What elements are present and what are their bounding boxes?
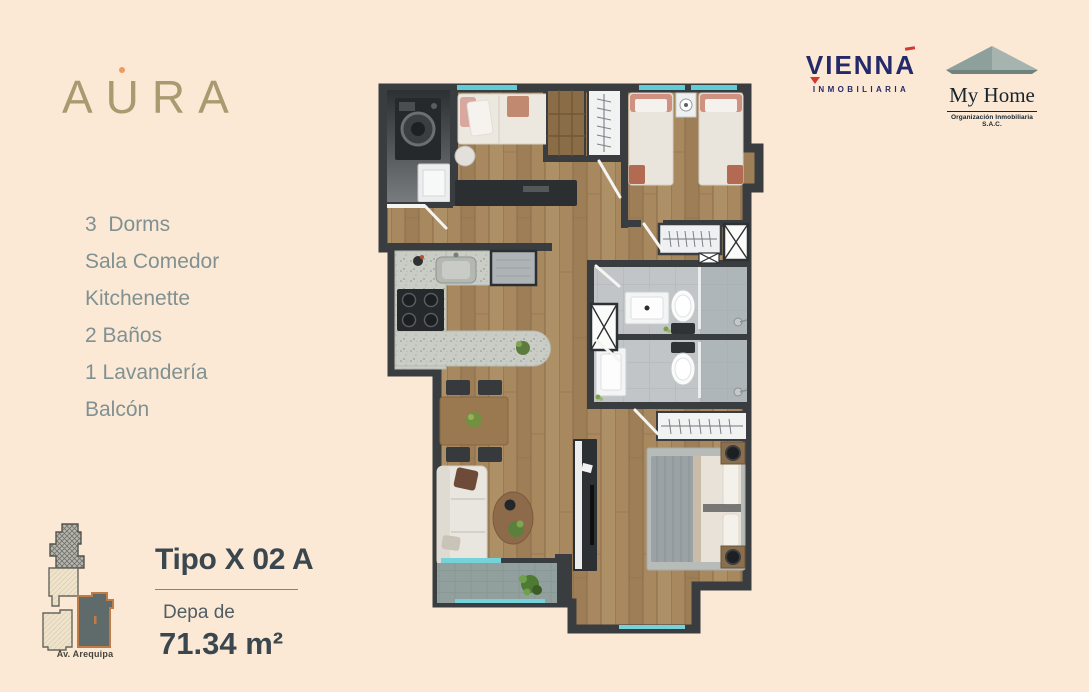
tower-wing-north bbox=[50, 524, 84, 568]
feature-list: 3 Dorms Sala Comedor Kitchenette 2 Baños… bbox=[85, 214, 219, 436]
terrace-glass bbox=[619, 625, 685, 629]
aura-logo-text: AURA bbox=[62, 71, 242, 123]
feature-item: 2 Baños bbox=[85, 325, 219, 346]
laundry-room bbox=[387, 90, 450, 204]
floor-plan bbox=[371, 80, 771, 642]
aura-logo: AURA bbox=[62, 74, 242, 120]
vienna-tagline: INMOBILIARIA bbox=[802, 85, 920, 94]
building-footprint-map bbox=[32, 516, 124, 656]
tower-wing-south bbox=[43, 610, 72, 650]
vienna-logo-text: VIENNA bbox=[806, 50, 916, 80]
myhome-logo-text: My Home bbox=[947, 81, 1037, 112]
feature-item: 1 Lavandería bbox=[85, 362, 219, 383]
divider-line bbox=[155, 589, 298, 590]
feature-item: 3 Dorms bbox=[85, 214, 219, 235]
tv-divider bbox=[573, 439, 597, 571]
bathroom-x-closet bbox=[591, 304, 617, 350]
vienna-red-triangle-icon bbox=[810, 77, 820, 84]
vienna-logo: VIENNA INMOBILIARIA bbox=[802, 52, 920, 94]
balcony bbox=[437, 558, 557, 603]
street-label: Av. Arequipa bbox=[30, 649, 140, 659]
tower-wing-middle bbox=[49, 568, 78, 606]
area-value: 71.34 m² bbox=[159, 626, 313, 662]
unit-door-marker bbox=[94, 616, 97, 624]
feature-item: Kitchenette bbox=[85, 288, 219, 309]
hallway-closet bbox=[547, 90, 621, 156]
myhome-tagline: Organización Inmobiliaria S.A.C. bbox=[941, 114, 1043, 128]
area-prefix: Depa de bbox=[163, 602, 313, 624]
unit-info: Tipo X 02 A Depa de 71.34 m² bbox=[155, 543, 313, 662]
aura-logo-dot-icon bbox=[119, 67, 125, 73]
flyer-canvas: AURA 3 Dorms Sala Comedor Kitchenette 2 … bbox=[0, 0, 1089, 692]
myhome-logo: My Home Organización Inmobiliaria S.A.C. bbox=[941, 44, 1043, 128]
unit-type-title: Tipo X 02 A bbox=[155, 543, 313, 577]
myhome-roof-icon bbox=[944, 44, 1040, 75]
feature-item: Sala Comedor bbox=[85, 251, 219, 272]
master-bedroom bbox=[647, 442, 745, 570]
feature-item: Balcón bbox=[85, 399, 219, 420]
master-closet bbox=[657, 412, 747, 440]
